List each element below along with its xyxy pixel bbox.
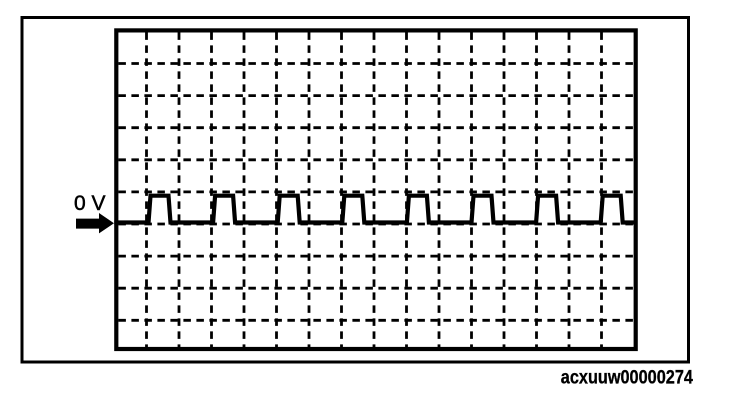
svg-text:acxuuw00000274: acxuuw00000274	[561, 366, 693, 387]
svg-text:0 V: 0 V	[74, 192, 106, 215]
